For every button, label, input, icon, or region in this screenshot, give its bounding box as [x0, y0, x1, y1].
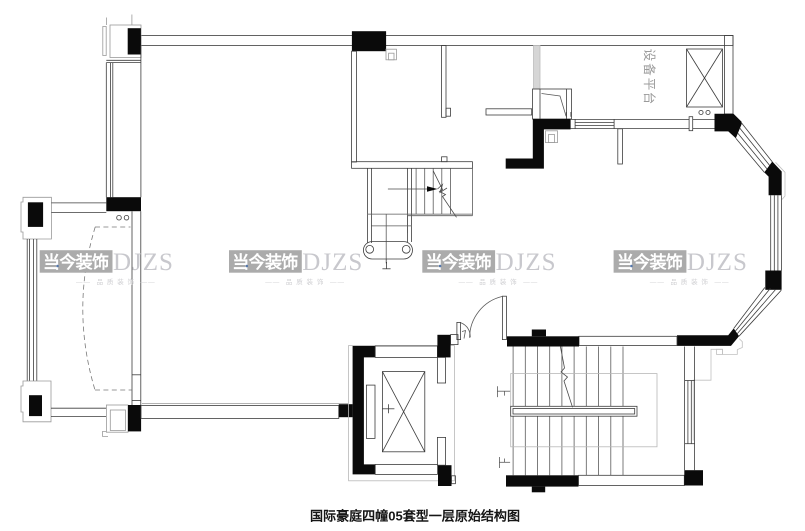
svg-text:DJZS: DJZS — [496, 249, 557, 276]
svg-text:—— 品 质 装 饰 ——: —— 品 质 装 饰 —— — [650, 277, 730, 286]
svg-text:—— 品 质 装 饰 ——: —— 品 质 装 饰 —— — [265, 277, 345, 286]
svg-text:—— 品 质 装 饰 ——: —— 品 质 装 饰 —— — [459, 277, 539, 286]
svg-text:平: 平 — [642, 78, 656, 91]
svg-text:—— 品 质 装 饰 ——: —— 品 质 装 饰 —— — [76, 277, 156, 286]
svg-text:当今装饰: 当今装饰 — [426, 252, 492, 272]
svg-text:当今装饰: 当今装饰 — [43, 252, 109, 272]
svg-text:当今装饰: 当今装饰 — [232, 252, 298, 272]
svg-text:设: 设 — [642, 49, 657, 62]
svg-text:DJZS: DJZS — [113, 249, 174, 276]
svg-text:DJZS: DJZS — [302, 249, 363, 276]
svg-text:国际豪庭四幢05套型一层原始结构图: 国际豪庭四幢05套型一层原始结构图 — [310, 508, 520, 524]
svg-text:当今装饰: 当今装饰 — [617, 252, 683, 272]
svg-text:台: 台 — [642, 92, 657, 105]
svg-text:备: 备 — [642, 63, 656, 76]
svg-text:DJZS: DJZS — [687, 249, 748, 276]
